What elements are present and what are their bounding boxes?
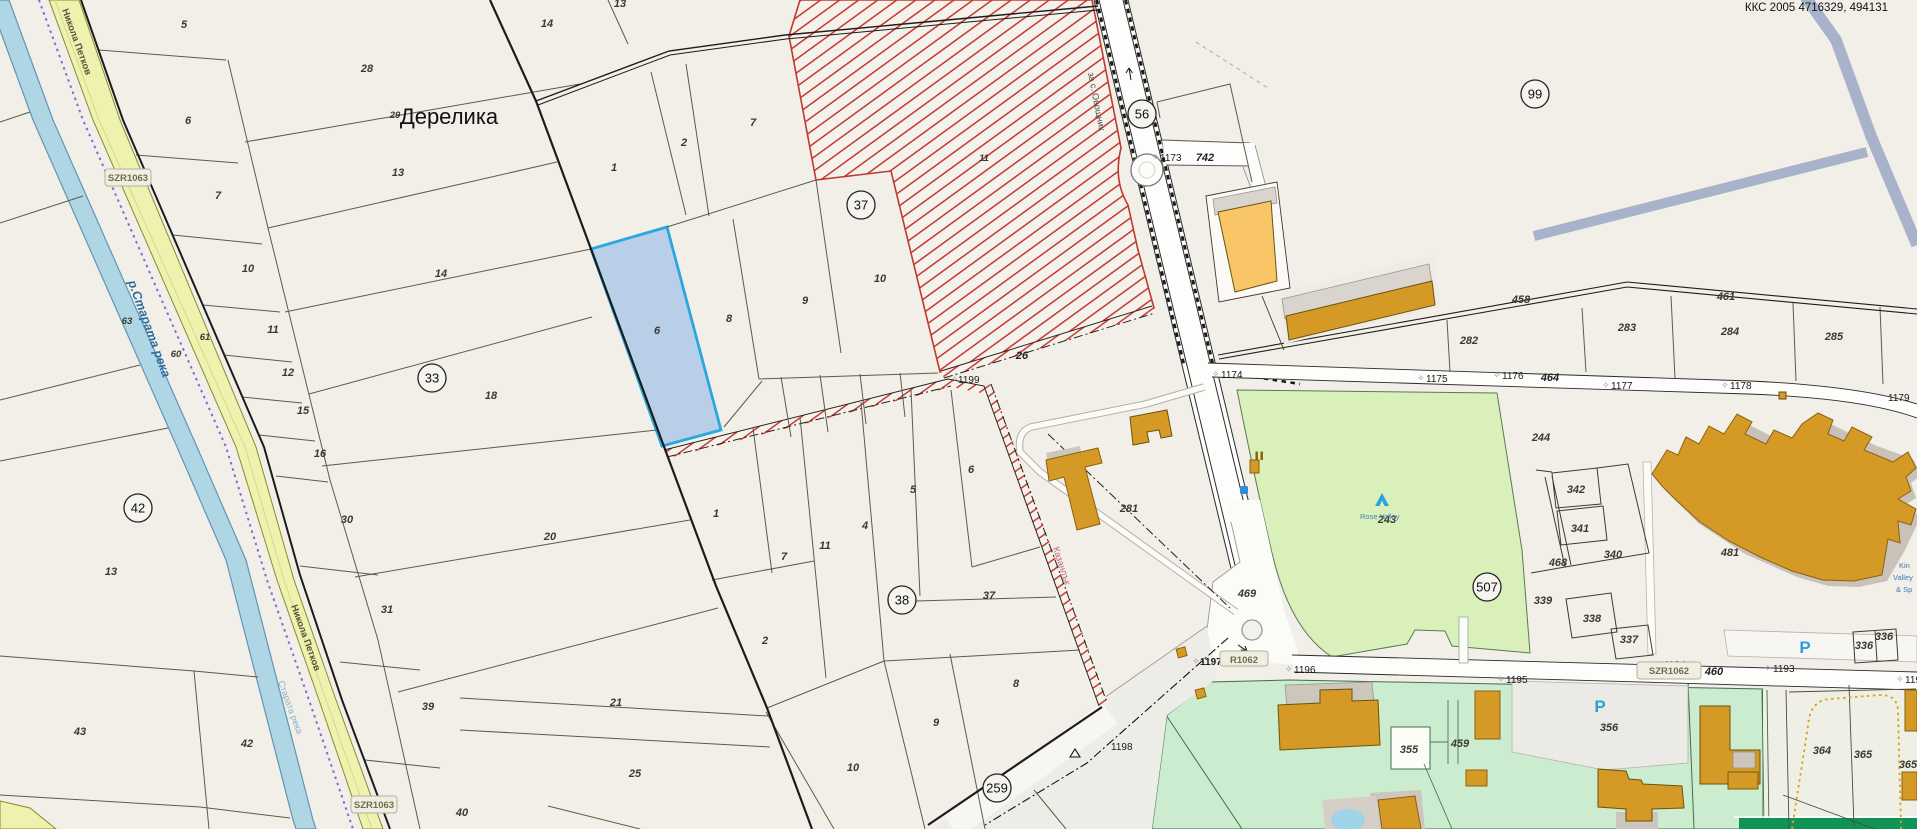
svg-text:461: 461: [1716, 291, 1735, 303]
svg-text:13: 13: [614, 0, 626, 10]
svg-text:25: 25: [628, 768, 642, 780]
svg-text:458: 458: [1511, 294, 1531, 306]
svg-text:460: 460: [1704, 666, 1724, 678]
svg-text:1198: 1198: [1111, 742, 1133, 753]
svg-text:341: 341: [1571, 523, 1589, 535]
svg-text:13: 13: [392, 167, 404, 179]
svg-text:38: 38: [895, 593, 909, 608]
svg-text:259: 259: [986, 781, 1008, 796]
svg-text:1: 1: [611, 162, 617, 174]
svg-text:8: 8: [1013, 678, 1020, 690]
svg-text:459: 459: [1450, 738, 1470, 750]
svg-text:39: 39: [422, 701, 435, 713]
svg-text:✧: ✧: [1896, 674, 1904, 684]
svg-text:1174: 1174: [1221, 370, 1243, 381]
svg-text:5: 5: [181, 19, 188, 31]
svg-text:285: 285: [1824, 331, 1844, 343]
svg-text:P: P: [1594, 697, 1605, 716]
svg-text:14: 14: [435, 268, 447, 280]
svg-text:342: 342: [1567, 484, 1585, 496]
svg-text:28: 28: [360, 63, 374, 75]
svg-text:37: 37: [854, 198, 868, 213]
svg-text:1173: 1173: [1160, 153, 1182, 164]
svg-text:7: 7: [750, 117, 757, 129]
svg-text:63: 63: [122, 316, 133, 327]
svg-text:281: 281: [1119, 503, 1138, 515]
svg-text:37: 37: [983, 590, 996, 602]
svg-text:Дерелика: Дерелика: [400, 104, 499, 129]
svg-text:282: 282: [1459, 335, 1478, 347]
svg-text:1195: 1195: [1506, 675, 1528, 686]
svg-text:284: 284: [1720, 326, 1739, 338]
svg-text:2: 2: [761, 635, 768, 647]
svg-text:✧: ✧: [1497, 674, 1505, 684]
svg-text:56: 56: [1135, 107, 1149, 122]
svg-text:1197: 1197: [1200, 657, 1222, 668]
svg-text:1178: 1178: [1730, 381, 1752, 392]
svg-text:26: 26: [1015, 350, 1029, 362]
svg-text:507: 507: [1476, 580, 1498, 595]
svg-text:1177: 1177: [1611, 381, 1633, 392]
svg-text:5: 5: [910, 484, 917, 496]
svg-text:SZR1063: SZR1063: [354, 800, 394, 811]
svg-text:6: 6: [654, 325, 661, 337]
svg-text:364: 364: [1813, 745, 1831, 757]
svg-text:60: 60: [171, 349, 182, 360]
svg-text:✧: ✧: [1764, 663, 1772, 673]
svg-text:338: 338: [1583, 613, 1602, 625]
svg-text:✧: ✧: [1212, 369, 1220, 379]
svg-text:Kin: Kin: [1899, 561, 1910, 570]
svg-text:9: 9: [802, 295, 809, 307]
svg-text:355: 355: [1400, 744, 1419, 756]
svg-text:340: 340: [1604, 549, 1623, 561]
svg-text:13: 13: [105, 566, 117, 578]
svg-text:61: 61: [200, 332, 211, 343]
svg-text:6: 6: [968, 464, 975, 476]
svg-text:8: 8: [726, 313, 733, 325]
svg-text:✧: ✧: [1192, 656, 1200, 666]
svg-text:Valley: Valley: [1893, 573, 1913, 582]
svg-text:29: 29: [389, 110, 401, 121]
svg-text:1193: 1193: [1773, 664, 1795, 675]
svg-text:1176: 1176: [1502, 371, 1524, 382]
svg-text:✧: ✧: [1417, 373, 1425, 383]
svg-text:11: 11: [267, 324, 278, 336]
svg-text:481: 481: [1720, 547, 1739, 559]
svg-text:42: 42: [240, 738, 253, 750]
svg-text:10: 10: [847, 762, 860, 774]
svg-text:469: 469: [1237, 588, 1257, 600]
svg-text:1: 1: [713, 508, 719, 520]
svg-text:✧: ✧: [1285, 664, 1293, 674]
svg-text:✧: ✧: [1602, 380, 1610, 390]
svg-text:6: 6: [185, 115, 192, 127]
svg-text:43: 43: [73, 726, 86, 738]
svg-text:4: 4: [861, 520, 868, 532]
svg-text:16: 16: [314, 448, 327, 460]
svg-text:ККС 2005 4716329, 494131: ККС 2005 4716329, 494131: [1745, 2, 1888, 14]
svg-text:SZR1063: SZR1063: [108, 173, 148, 184]
svg-text:468: 468: [1548, 557, 1568, 569]
svg-text:356: 356: [1600, 722, 1619, 734]
svg-text:21: 21: [609, 697, 622, 709]
svg-text:7: 7: [215, 190, 222, 202]
svg-text:1199: 1199: [958, 375, 980, 386]
svg-text:1196: 1196: [1294, 665, 1316, 676]
svg-text:119: 119: [1905, 675, 1917, 686]
svg-text:464: 464: [1540, 372, 1559, 384]
svg-text:40: 40: [455, 807, 469, 819]
svg-text:99: 99: [1528, 87, 1542, 102]
svg-text:2: 2: [680, 137, 687, 149]
svg-text:9: 9: [933, 717, 940, 729]
svg-text:31: 31: [381, 604, 393, 616]
svg-text:10: 10: [242, 263, 255, 275]
svg-text:337: 337: [1620, 634, 1639, 646]
svg-text:30: 30: [341, 514, 354, 526]
svg-text:18: 18: [485, 390, 498, 402]
svg-text:365: 365: [1854, 749, 1873, 761]
svg-text:14: 14: [541, 18, 553, 30]
svg-text:283: 283: [1617, 322, 1636, 334]
svg-text:▐▐: ▐▐: [1253, 451, 1263, 461]
svg-text:1175: 1175: [1426, 374, 1448, 385]
svg-text:Rose Valley: Rose Valley: [1360, 512, 1400, 521]
svg-text:✧: ✧: [1152, 152, 1160, 162]
svg-text:& Sp: & Sp: [1896, 585, 1912, 594]
svg-text:10: 10: [874, 273, 887, 285]
svg-text:SZR1062: SZR1062: [1649, 666, 1689, 677]
svg-text:12: 12: [282, 367, 294, 379]
svg-text:365: 365: [1899, 759, 1917, 771]
svg-text:20: 20: [543, 531, 557, 543]
svg-text:244: 244: [1531, 432, 1550, 444]
svg-text:R1062: R1062: [1230, 655, 1258, 666]
svg-text:742: 742: [1196, 152, 1214, 164]
svg-text:42: 42: [131, 501, 145, 516]
svg-text:1179: 1179: [1888, 393, 1910, 404]
svg-text:15: 15: [297, 405, 310, 417]
svg-text:336: 336: [1875, 631, 1894, 643]
svg-text:11: 11: [979, 153, 989, 164]
svg-text:336: 336: [1855, 640, 1874, 652]
svg-text:11: 11: [819, 540, 830, 552]
svg-text:33: 33: [425, 371, 439, 386]
svg-text:✧: ✧: [1721, 380, 1729, 390]
svg-text:✧: ✧: [1493, 370, 1501, 380]
svg-text:P: P: [1799, 638, 1810, 657]
svg-text:339: 339: [1534, 595, 1553, 607]
svg-text:7: 7: [781, 551, 788, 563]
